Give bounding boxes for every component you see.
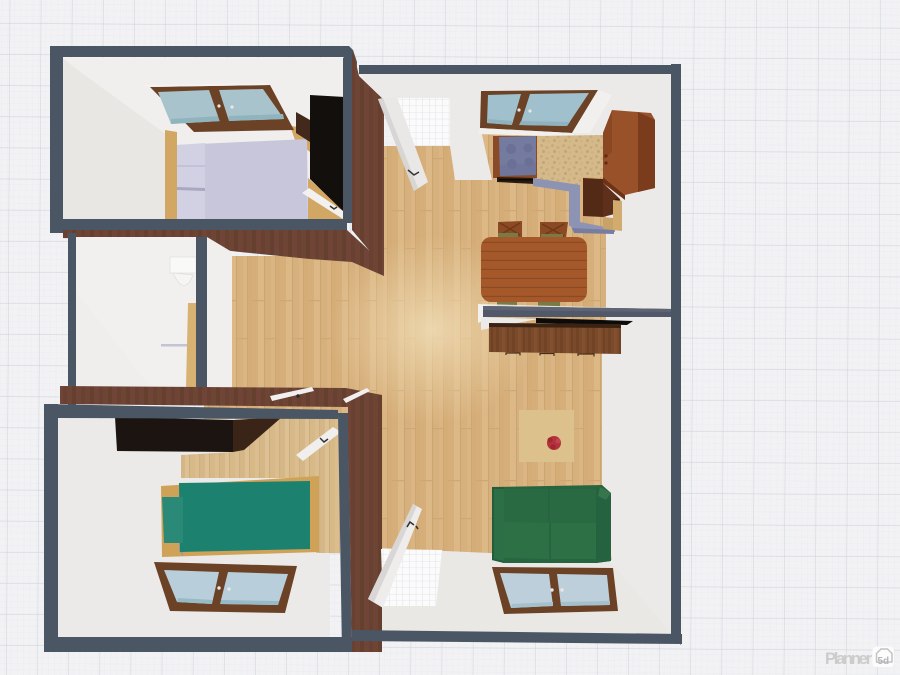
svg-text:Planner: Planner: [825, 650, 873, 668]
svg-text:5d: 5d: [878, 656, 890, 667]
